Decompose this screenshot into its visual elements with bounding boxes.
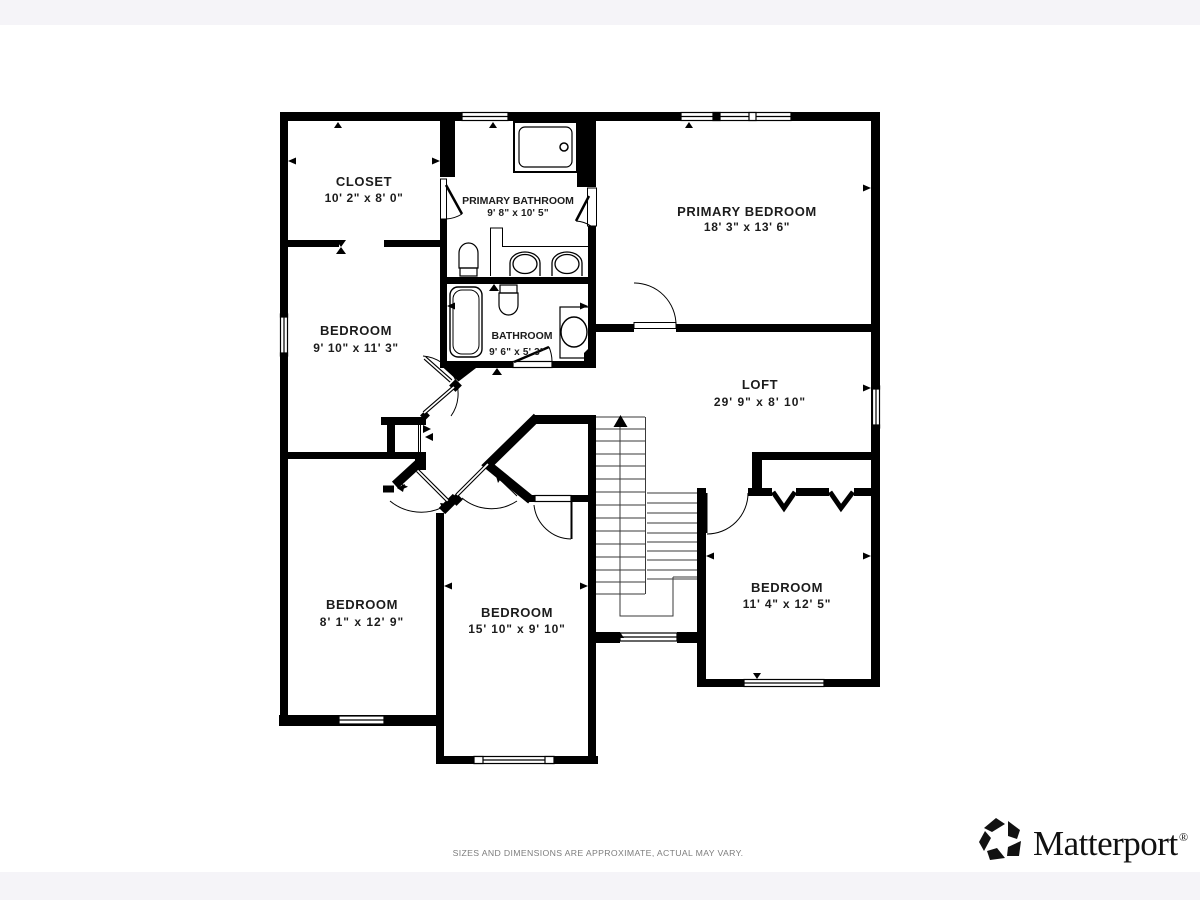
- svg-text:9' 6" x 5' 3": 9' 6" x 5' 3": [489, 347, 545, 358]
- svg-text:BATHROOM: BATHROOM: [491, 330, 552, 342]
- svg-text:29' 9" x 8' 10": 29' 9" x 8' 10": [714, 395, 806, 409]
- svg-text:10' 2" x 8' 0": 10' 2" x 8' 0": [325, 191, 404, 205]
- svg-text:18' 3" x 13' 6": 18' 3" x 13' 6": [704, 220, 790, 234]
- svg-text:PRIMARY BATHROOM: PRIMARY BATHROOM: [462, 195, 574, 207]
- svg-text:LOFT: LOFT: [742, 377, 778, 392]
- svg-text:BEDROOM: BEDROOM: [320, 323, 392, 338]
- svg-text:®: ®: [1179, 830, 1188, 844]
- svg-text:15' 10" x 9' 10": 15' 10" x 9' 10": [468, 622, 565, 636]
- svg-text:8' 1" x 12' 9": 8' 1" x 12' 9": [320, 615, 404, 629]
- svg-text:9' 8" x 10' 5": 9' 8" x 10' 5": [487, 208, 549, 219]
- svg-text:SIZES AND DIMENSIONS ARE APPRO: SIZES AND DIMENSIONS ARE APPROXIMATE, AC…: [453, 848, 744, 858]
- svg-text:PRIMARY BEDROOM: PRIMARY BEDROOM: [677, 204, 817, 219]
- svg-text:CLOSET: CLOSET: [336, 174, 392, 189]
- svg-text:Matterport: Matterport: [1033, 824, 1178, 863]
- svg-text:9' 10" x 11' 3": 9' 10" x 11' 3": [313, 341, 398, 355]
- svg-text:BEDROOM: BEDROOM: [751, 580, 823, 595]
- svg-text:11' 4" x 12' 5": 11' 4" x 12' 5": [743, 597, 831, 611]
- svg-text:BEDROOM: BEDROOM: [326, 597, 398, 612]
- svg-text:BEDROOM: BEDROOM: [481, 605, 553, 620]
